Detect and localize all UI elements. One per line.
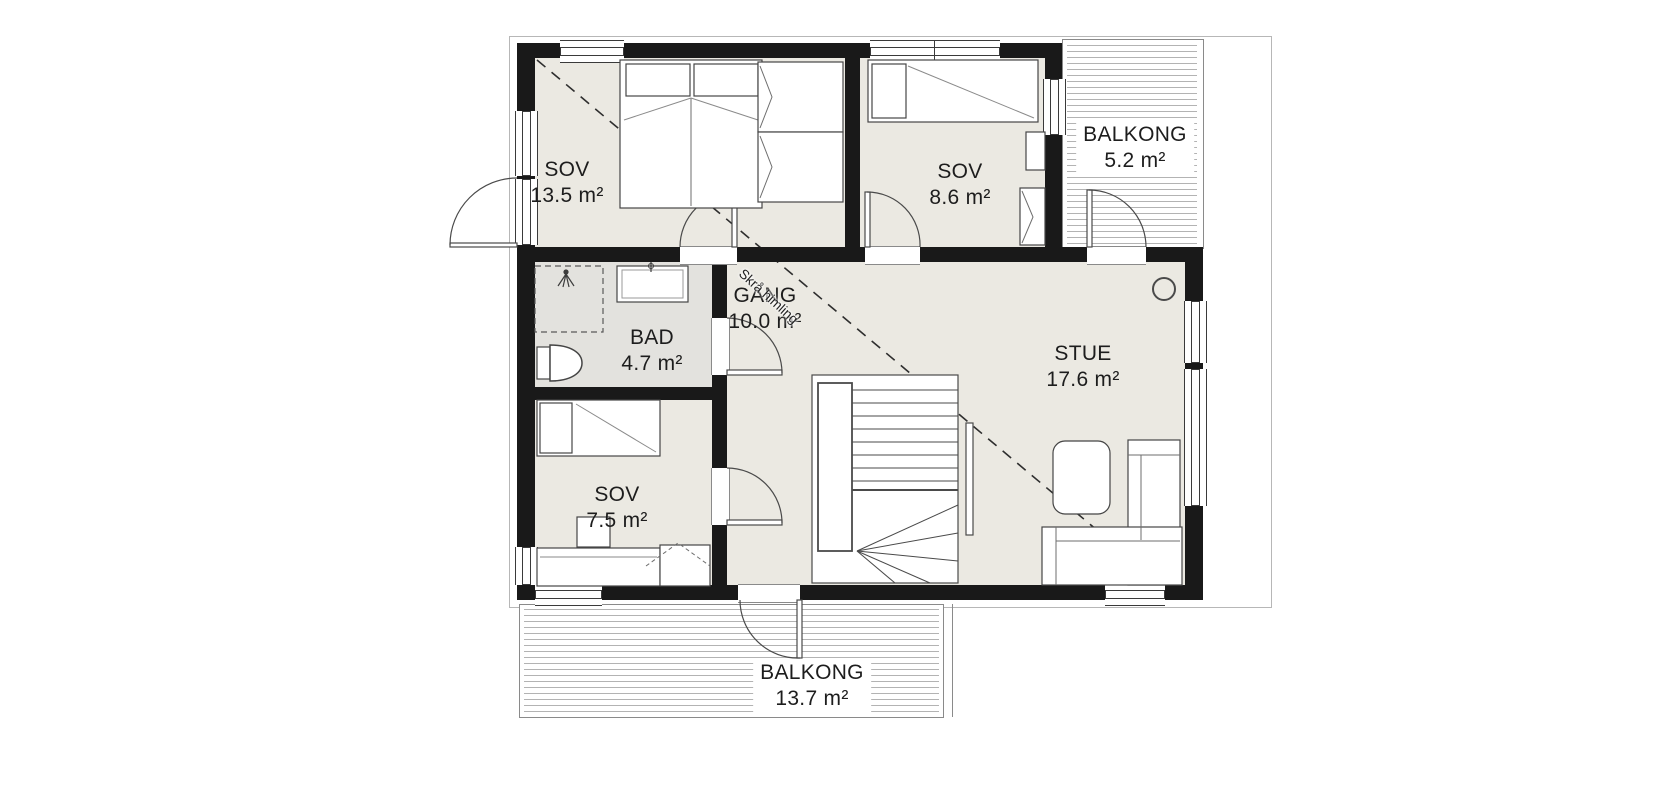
balcony-bottom-boards [524, 609, 939, 713]
window-sov3-south [535, 583, 602, 606]
room-name: STUE [1046, 341, 1119, 367]
window-stue-south [1105, 583, 1165, 606]
label-bad: BAD 4.7 m² [621, 325, 682, 377]
label-sov2: SOV 8.6 m² [929, 159, 990, 211]
window-sov2-north [870, 40, 1000, 63]
room-area: 8.6 m² [929, 185, 990, 211]
label-balkong-top: BALKONG 5.2 m² [1076, 121, 1194, 175]
door-opening-sov2 [865, 246, 920, 265]
room-fill-sov2 [860, 58, 1045, 247]
door-arc-west-exterior [450, 178, 517, 245]
room-name: SOV [586, 482, 647, 508]
room-area: 13.7 m² [760, 686, 864, 712]
door-opening-sov3 [711, 468, 730, 525]
label-stue: STUE 17.6 m² [1046, 341, 1119, 393]
window-sov3-west [515, 547, 538, 585]
door-opening-balcony-bottom [738, 584, 800, 603]
door-opening-balcony-top [1087, 246, 1146, 265]
window-stue-east-upper [1184, 301, 1207, 363]
room-name: BALKONG [760, 660, 864, 686]
stue-circle-mark [1152, 277, 1176, 301]
room-name: SOV [929, 159, 990, 185]
window-divider [934, 41, 935, 62]
window-sov1-north [560, 40, 624, 63]
room-area: 17.6 m² [1046, 367, 1119, 393]
room-area: 4.7 m² [621, 351, 682, 377]
label-sov3: SOV 7.5 m² [586, 482, 647, 534]
wall-sov2-balcony [1045, 43, 1062, 262]
window-sov2-east [1043, 79, 1066, 135]
door-leaf-west-exterior [450, 243, 517, 247]
room-area: 13.5 m² [530, 183, 603, 209]
room-name: BAD [621, 325, 682, 351]
door-opening-bad [711, 318, 730, 375]
label-balkong-bottom: BALKONG 13.7 m² [753, 659, 871, 713]
wall-bad-sov3 [517, 387, 727, 400]
balcony-bottom-deck [519, 604, 944, 718]
window-stue-east-lower [1184, 369, 1207, 506]
wall-bottom [517, 585, 1203, 600]
room-area: 7.5 m² [586, 508, 647, 534]
floor-plan: SOV 13.5 m² SOV 8.6 m² BALKONG 5.2 m² BA… [0, 0, 1670, 800]
wall-sov1-sov2 [845, 43, 860, 262]
room-area: 5.2 m² [1083, 148, 1187, 174]
wall-gang-west [712, 247, 727, 600]
room-name: BALKONG [1083, 122, 1187, 148]
room-fill-sov1 [535, 58, 845, 247]
balcony-rail-line [952, 604, 953, 717]
door-opening-sov1 [680, 246, 737, 265]
room-name: SOV [530, 157, 603, 183]
label-sov1: SOV 13.5 m² [530, 157, 603, 209]
